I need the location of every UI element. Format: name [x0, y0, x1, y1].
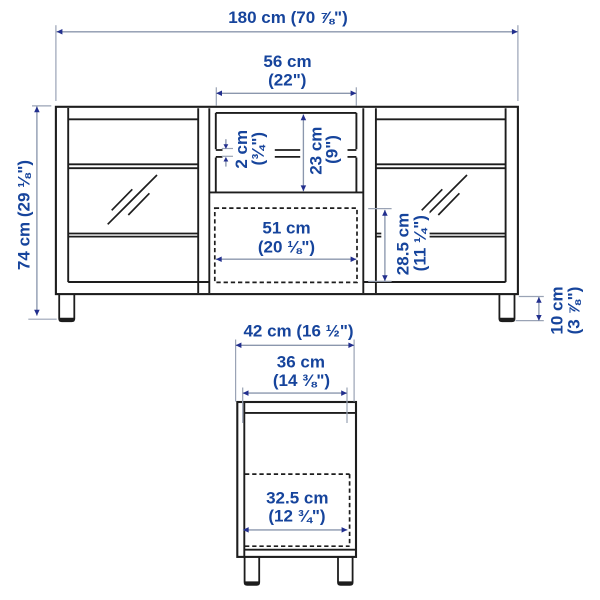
svg-text:36 cm: 36 cm	[277, 353, 325, 372]
svg-text:56 cm: 56 cm	[263, 52, 311, 71]
svg-text:(12 ¾"): (12 ¾")	[268, 507, 325, 526]
svg-text:180 cm (70 ⅞"): 180 cm (70 ⅞")	[228, 8, 348, 27]
svg-text:(14 ⅜"): (14 ⅜")	[273, 371, 330, 390]
svg-text:74 cm (29 ⅛"): 74 cm (29 ⅛")	[14, 160, 33, 270]
svg-text:32.5 cm: 32.5 cm	[266, 489, 328, 508]
svg-text:(3 ⅞"): (3 ⅞")	[565, 287, 584, 335]
svg-text:51 cm: 51 cm	[262, 219, 310, 238]
svg-text:(11 ¼"): (11 ¼")	[410, 215, 429, 271]
svg-text:(¾"): (¾")	[249, 132, 268, 166]
svg-text:(20 ⅛"): (20 ⅛")	[258, 237, 315, 256]
svg-text:42 cm (16 ½"): 42 cm (16 ½")	[243, 321, 353, 340]
svg-text:(9"): (9")	[323, 135, 342, 164]
svg-text:(22"): (22")	[268, 71, 306, 90]
